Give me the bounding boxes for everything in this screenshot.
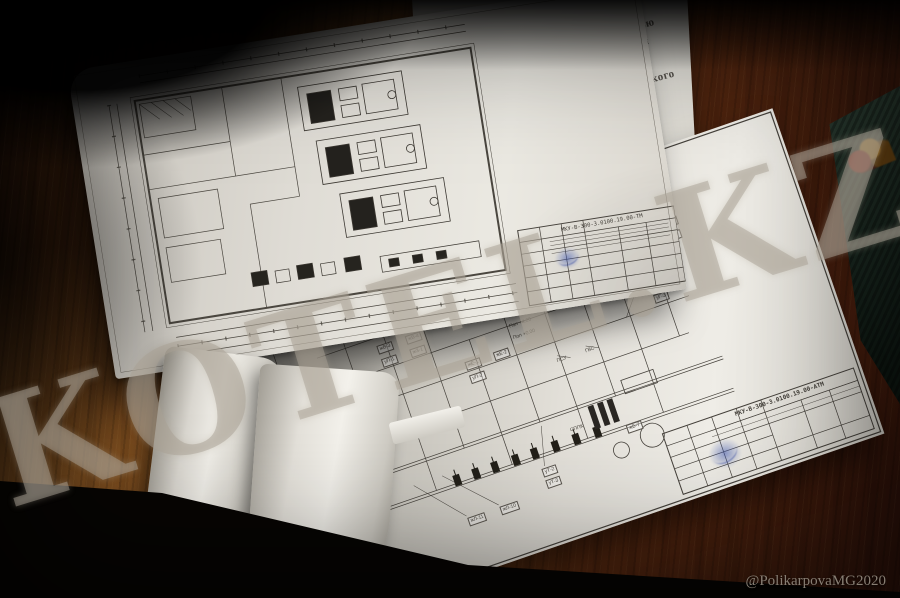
photo-scene: щностью танция нического ние bbox=[0, 0, 900, 598]
book-ornament bbox=[840, 130, 896, 178]
photographer-credit: @PolikarpovaMG2020 bbox=[746, 573, 886, 590]
